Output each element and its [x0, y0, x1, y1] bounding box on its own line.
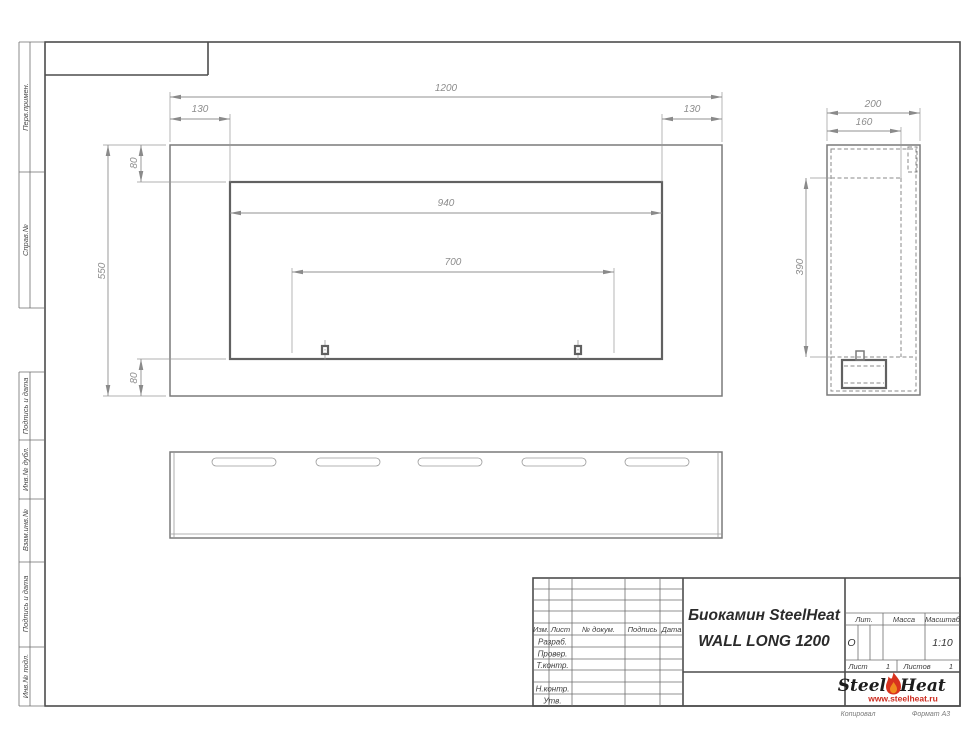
dim-front-overall-width: 1200 — [170, 83, 722, 142]
side-view-firebox-hidden — [831, 178, 916, 357]
drawing-sheet: Перв.примен. Справ.№ Подпись и дата Инв.… — [0, 0, 970, 749]
tb-sheet-label: Лист — [847, 662, 867, 671]
svg-text:130: 130 — [192, 104, 209, 115]
tb-sheet-value: 1 — [886, 662, 890, 671]
front-view-mount-hole-left — [322, 340, 328, 361]
tb-sheets-value: 1 — [949, 662, 953, 671]
front-view: 1200 130 130 550 80 — [97, 83, 722, 396]
tb-col-podpis: Подпись — [628, 625, 658, 634]
document-title-line2: WALL LONG 1200 — [698, 633, 830, 650]
tb-col-data: Дата — [661, 625, 682, 634]
svg-text:160: 160 — [856, 117, 873, 128]
dim-side-depth: 200 — [827, 99, 920, 141]
sidebar-label-inv-dubl: Инв.№ дубл. — [21, 447, 30, 491]
sidebar-label-podpis-data-1: Подпись и дата — [21, 378, 30, 435]
sidebar-label-inv-podl: Инв.№ подл. — [21, 654, 30, 698]
front-view-mount-hole-right — [575, 340, 581, 361]
logo-url: www.steelheat.ru — [867, 694, 938, 704]
flame-icon — [886, 673, 901, 695]
svg-text:940: 940 — [438, 198, 455, 209]
copied-label: Копировал — [841, 711, 876, 718]
dim-front-mount-spacing: 700 — [292, 257, 614, 353]
dim-front-right-offset: 130 — [662, 104, 722, 182]
svg-text:550: 550 — [97, 262, 108, 279]
tb-col-list: Лист — [550, 625, 570, 634]
title-block: Изм. Лист № докум. Подпись Дата Разраб. … — [533, 578, 961, 706]
tb-col-izm: Изм. — [533, 625, 549, 634]
tb-row-tkontr: Т.контр. — [536, 661, 568, 670]
format-label: Формат А3 — [912, 711, 950, 718]
tb-scale-label: Масштаб — [925, 615, 961, 624]
dim-front-top-offset: 80 — [129, 145, 226, 182]
sidebar-label-podpis-data-2: Подпись и дата — [21, 576, 30, 633]
svg-text:700: 700 — [445, 257, 462, 268]
dim-front-opening-width: 940 — [230, 198, 662, 213]
bottom-view-outer-contour — [170, 452, 722, 538]
sidebar-label-perv-primen: Перв.примен. — [21, 83, 30, 131]
dim-front-overall-height: 550 — [97, 145, 166, 396]
svg-text:80: 80 — [129, 157, 140, 169]
svg-text:1200: 1200 — [435, 83, 458, 94]
tb-lit-value: О — [847, 637, 855, 649]
top-left-designation-cell — [45, 42, 208, 75]
sidebar-label-sprav-no: Справ.№ — [21, 224, 30, 256]
tb-row-prover: Провер. — [538, 650, 568, 659]
svg-text:390: 390 — [795, 258, 806, 275]
bottom-view-vent-slots — [212, 458, 689, 466]
tb-row-nkontr: Н.контр. — [536, 685, 570, 694]
tb-row-razrab: Разраб. — [538, 638, 567, 647]
steelheat-logo: Steel Heat www.steelheat.ru — [838, 673, 946, 704]
tb-row-utv: Утв. — [542, 697, 561, 706]
dim-front-left-offset: 130 — [170, 104, 230, 182]
tb-lit-label: Лит. — [854, 615, 873, 624]
svg-text:200: 200 — [864, 99, 882, 110]
dim-side-inner-depth: 160 — [827, 117, 901, 178]
tb-scale-value: 1:10 — [932, 637, 953, 649]
drawing-canvas: Перв.примен. Справ.№ Подпись и дата Инв.… — [0, 0, 970, 749]
tb-sheets-label: Листов — [902, 662, 930, 671]
dim-front-bottom-offset: 80 — [129, 359, 226, 396]
sidebar-label-vzam-inv: Взам.инв.№ — [21, 509, 30, 551]
left-sidebar: Перв.примен. Справ.№ Подпись и дата Инв.… — [19, 42, 45, 706]
bottom-view — [170, 452, 722, 538]
tb-mass-label: Масса — [893, 615, 915, 624]
svg-text:130: 130 — [684, 104, 701, 115]
document-title-line1: Биокамин SteelHeat — [688, 607, 841, 624]
side-view: 200 160 390 — [795, 99, 920, 395]
side-view-wall-hidden — [831, 149, 916, 391]
svg-text:80: 80 — [129, 372, 140, 384]
tb-col-dokum: № докум. — [582, 625, 615, 634]
